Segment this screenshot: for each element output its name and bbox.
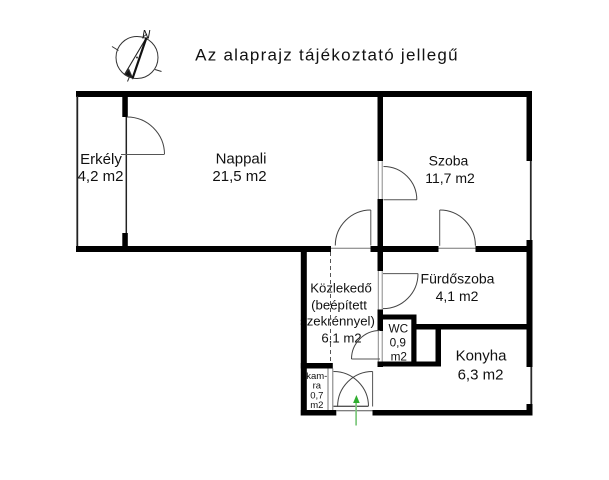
svg-text:Konyha: Konyha: [456, 348, 508, 365]
svg-text:4,2 m2: 4,2 m2: [78, 168, 124, 185]
svg-text:szekrénnyel): szekrénnyel): [300, 314, 375, 329]
svg-text:Nappali: Nappali: [216, 151, 267, 168]
svg-text:Erkély: Erkély: [80, 151, 122, 168]
svg-text:4,1 m2: 4,1 m2: [436, 288, 479, 304]
svg-text:Közlekedő: Közlekedő: [310, 281, 372, 296]
svg-text:11,7 m2: 11,7 m2: [425, 170, 475, 186]
svg-text:N: N: [142, 30, 151, 42]
svg-text:6,3 m2: 6,3 m2: [458, 367, 504, 384]
svg-text:WC: WC: [388, 322, 408, 336]
svg-text:Szoba: Szoba: [429, 153, 469, 169]
svg-text:Az alaprajz tájékoztató jelleg: Az alaprajz tájékoztató jellegű: [195, 46, 459, 65]
svg-text:0,9: 0,9: [390, 336, 406, 350]
svg-text:Fürdőszoba: Fürdőszoba: [421, 271, 495, 287]
svg-text:21,5 m2: 21,5 m2: [212, 168, 266, 185]
svg-text:(beépített: (beépített: [311, 298, 367, 313]
svg-text:m2: m2: [310, 400, 323, 411]
svg-text:m2: m2: [391, 350, 407, 364]
